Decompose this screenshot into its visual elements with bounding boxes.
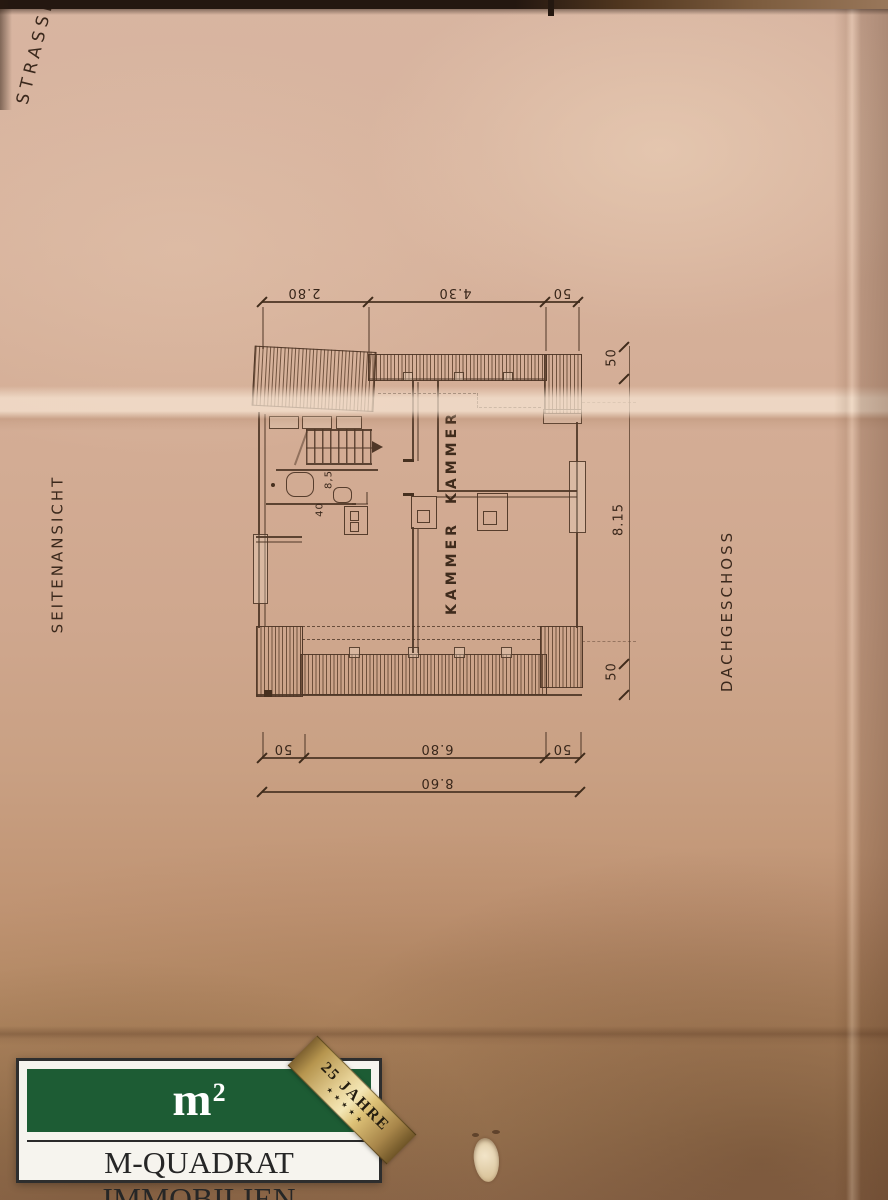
stair-rail-bottom (306, 463, 372, 465)
sink (333, 487, 352, 503)
door-jamb (403, 459, 414, 462)
dim-line-top (262, 301, 580, 303)
dim-tick (618, 658, 629, 669)
cabinet-inner-2 (350, 522, 359, 532)
wall-tick (454, 372, 464, 381)
wall-below-wc-inner (256, 541, 302, 543)
wc-wall (266, 503, 356, 505)
closet-shaft-1-inner (417, 510, 430, 523)
ink-smudge (472, 1133, 479, 1137)
paper-left-edge (0, 0, 12, 110)
stair-treads (306, 429, 372, 463)
dim-label-bottom-right-wall: 50 (542, 741, 582, 756)
dim-label-top-mid: 4.30 (425, 285, 485, 300)
dim-tick (618, 689, 629, 700)
partition-hall-lower (412, 527, 414, 653)
extension-line (582, 641, 636, 642)
paper-top-edge-shadow (0, 9, 888, 15)
dim-label-bottom-total: 8.60 (407, 775, 467, 790)
dim-label-top-wall: 50 (545, 285, 579, 300)
extension-line (582, 402, 636, 403)
dim-tick (618, 341, 629, 352)
paper-top-edge (0, 0, 888, 9)
partition-hall-lower-inner (417, 529, 419, 653)
dim-label-right-top-wall: 50 (605, 338, 620, 378)
partition-hall-upper (412, 380, 414, 461)
door-handle-dot (271, 483, 275, 487)
wall-tick (501, 647, 512, 658)
cropped-drawing-mark (548, 0, 554, 16)
window-top-1 (269, 416, 299, 429)
cabinet-inner-1 (350, 511, 359, 521)
room-label-kammer-top: KAMMER (444, 399, 460, 515)
wall-hatch-top-left (252, 346, 377, 412)
dim-line-bottom-total (262, 791, 580, 793)
wall-tick (349, 647, 360, 658)
roof-dash-line (378, 393, 476, 394)
room-label-kammer-bottom: KAMMER (444, 510, 460, 626)
closet-shaft-2-inner (483, 511, 497, 525)
logo-m2-symbol: m2 (172, 1077, 225, 1124)
wall-tick (454, 647, 465, 658)
stair-direction-arrow (372, 441, 383, 453)
dim-label-bottom-inner: 6.80 (407, 741, 467, 756)
logo-divider (27, 1140, 371, 1142)
partition-kammer-left (437, 380, 439, 492)
dim-label-bath-width: 40 (315, 490, 326, 530)
floor-plan: 2.80 4.30 50 (0, 0, 888, 1200)
wall-below-wc (256, 536, 302, 538)
wall-hatch-ne-corner (544, 354, 582, 414)
wall-outer-bottom (256, 694, 582, 696)
dim-tick (618, 373, 629, 384)
wall-hatch-bottom (300, 654, 547, 695)
wall-hatch-se-corner (540, 626, 583, 688)
wall-foot-mark (264, 690, 272, 697)
dim-label-right-bottom-wall: 50 (605, 652, 620, 692)
dim-line-right (629, 346, 630, 700)
extension-line (262, 307, 264, 349)
extension-line (545, 307, 547, 351)
partition-hall-upper-inner (417, 382, 419, 461)
extension-line (578, 307, 580, 351)
wall-hatch-sw-corner (256, 626, 303, 697)
roof-dash-line (302, 639, 540, 640)
ink-smudge (492, 1130, 500, 1134)
roof-dash-line (479, 407, 541, 408)
logo-exponent: 2 (213, 1078, 226, 1107)
wc-jamb-v (366, 492, 368, 504)
dim-label-top-left: 2.80 (274, 285, 334, 300)
window-top-2 (302, 416, 332, 429)
roof-dash-line (477, 393, 478, 408)
scanned-floorplan-page: STRASSE SEITENANSICHT DACHGESCHOSS 2.80 … (0, 0, 888, 1200)
wall-tick (503, 372, 513, 381)
company-name: M-QUADRAT IMMOBILIEN (15, 1145, 382, 1200)
logo-m: m (172, 1074, 211, 1126)
toilet (286, 472, 314, 497)
dim-label-bottom-left-wall: 50 (263, 741, 303, 756)
dim-label-right-height: 8.15 (612, 490, 627, 550)
window-top-3 (336, 416, 362, 429)
roof-dash-line (302, 626, 540, 627)
window-left (253, 534, 268, 604)
dim-line-bottom-inner (262, 757, 580, 759)
